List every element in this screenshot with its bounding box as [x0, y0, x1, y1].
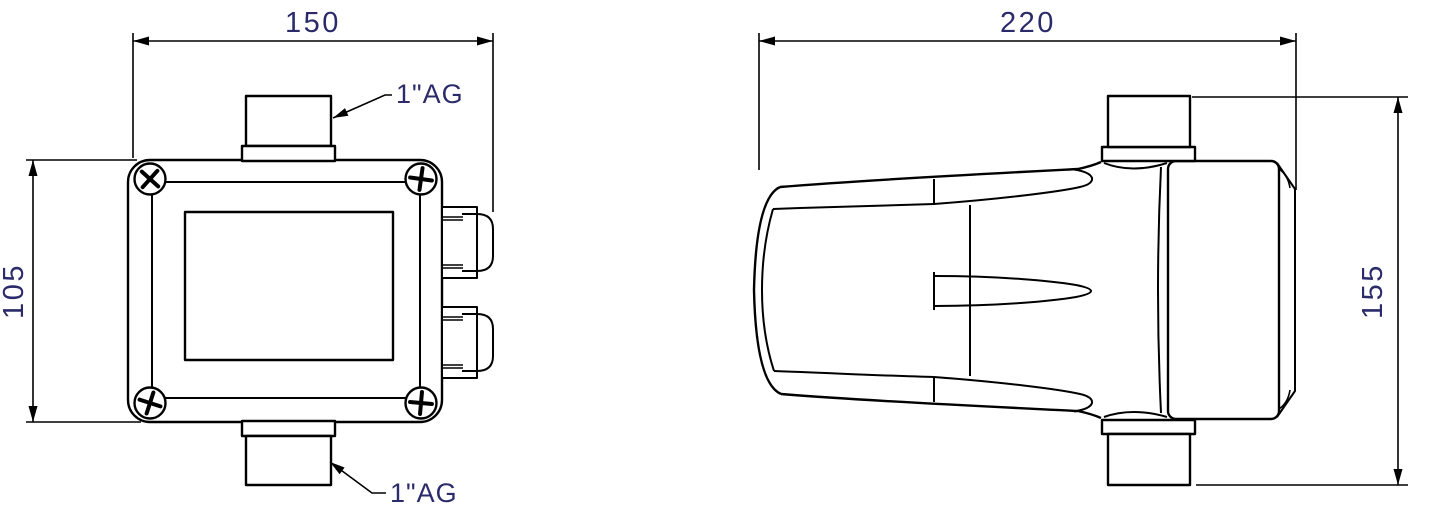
front-height-value: 105 [0, 263, 30, 319]
dim-arrow-left-icon [133, 37, 149, 46]
corner-screw-top-left [134, 163, 165, 194]
pressure-switch-dimension-drawing: 150 105 [0, 0, 1445, 522]
corner-screw-bottom-right [406, 388, 437, 419]
dim-arrow-down-icon [1394, 469, 1403, 485]
bottom-fin-blade [934, 377, 1092, 412]
front-bottom-port-label: 1"AG [390, 478, 458, 508]
dim-arrow-right-icon [1280, 37, 1296, 46]
dim-arrow-up-icon [29, 160, 38, 176]
front-bottom-port [242, 421, 335, 485]
dim-arrow-right-icon [477, 37, 493, 46]
leader-arrow-icon [333, 108, 348, 118]
technical-drawing-page: 150 105 [0, 0, 1445, 522]
front-bottom-port-callout: 1"AG [330, 462, 458, 508]
side-height-value: 155 [1357, 263, 1389, 319]
front-view: 150 105 [0, 7, 493, 508]
front-top-port [242, 96, 335, 161]
side-cover-shroud [754, 162, 1167, 418]
corner-screw-bottom-left [135, 388, 166, 419]
cable-gland-lower [442, 307, 493, 378]
dim-arrow-up-icon [1394, 97, 1403, 113]
front-width-value: 150 [285, 7, 341, 39]
front-top-port-label: 1"AG [396, 79, 464, 109]
dim-arrow-left-icon [759, 37, 775, 46]
side-width-value: 220 [1000, 7, 1056, 39]
side-view: 220 155 [754, 7, 1408, 485]
corner-screw-top-right [406, 164, 437, 195]
front-housing-body [128, 160, 442, 422]
side-top-port [1102, 96, 1195, 161]
middle-fin-blade [935, 276, 1091, 306]
side-bottom-port [1102, 420, 1195, 485]
side-junction-box [1168, 161, 1295, 419]
front-top-port-callout: 1"AG [333, 79, 464, 118]
front-height-dimension: 105 [0, 160, 141, 422]
dim-arrow-down-icon [29, 406, 38, 422]
cable-gland-upper [442, 207, 493, 278]
